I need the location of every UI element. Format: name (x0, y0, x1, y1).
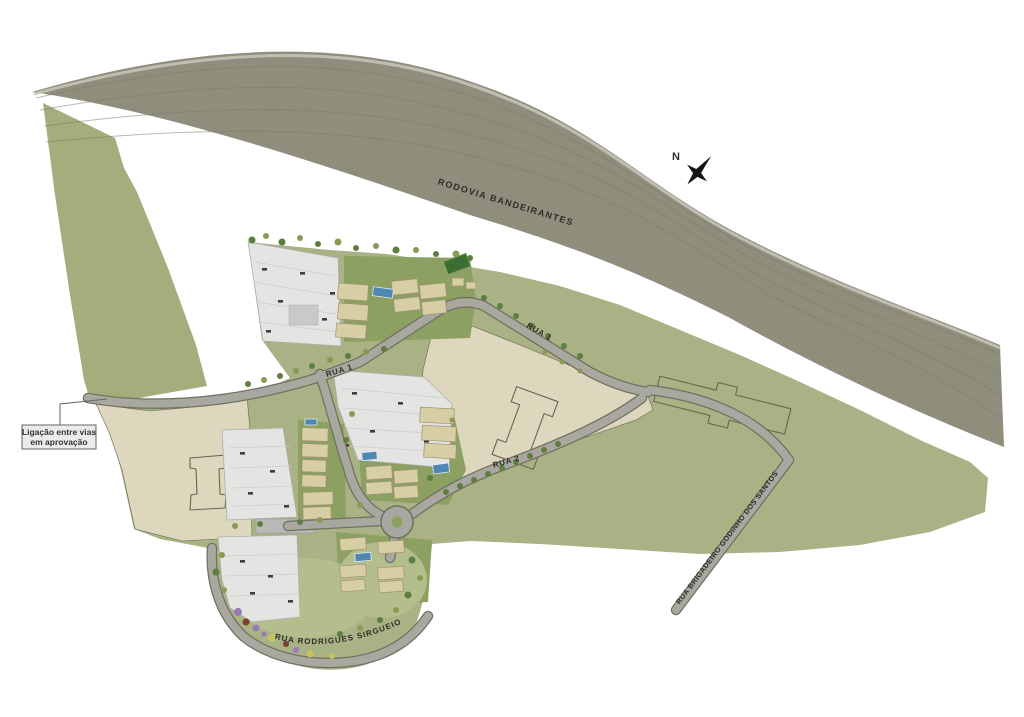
callout-line-2: em aprovação (30, 437, 87, 447)
compass-north-icon (677, 148, 721, 193)
pool-bottom-north (305, 419, 317, 425)
pool-bottom-south (355, 552, 372, 561)
pool-middle-west (362, 451, 378, 460)
compass-north-label: N (672, 151, 680, 163)
parking-deck-top (248, 242, 341, 346)
terrain-left-hill (43, 103, 207, 404)
site-masterplan: RODOVIA BANDEIRANTES RUA 1 RUA 1 RUA 2 R… (0, 0, 1024, 717)
annotation-callout: Ligação entre vias em aprovação (22, 399, 107, 449)
masterplan-canvas: RODOVIA BANDEIRANTES RUA 1 RUA 1 RUA 2 R… (0, 0, 1024, 717)
roundabout-island (392, 517, 403, 528)
pool-middle-east (433, 463, 450, 474)
callout-line-1: Ligação entre vias (22, 427, 96, 437)
